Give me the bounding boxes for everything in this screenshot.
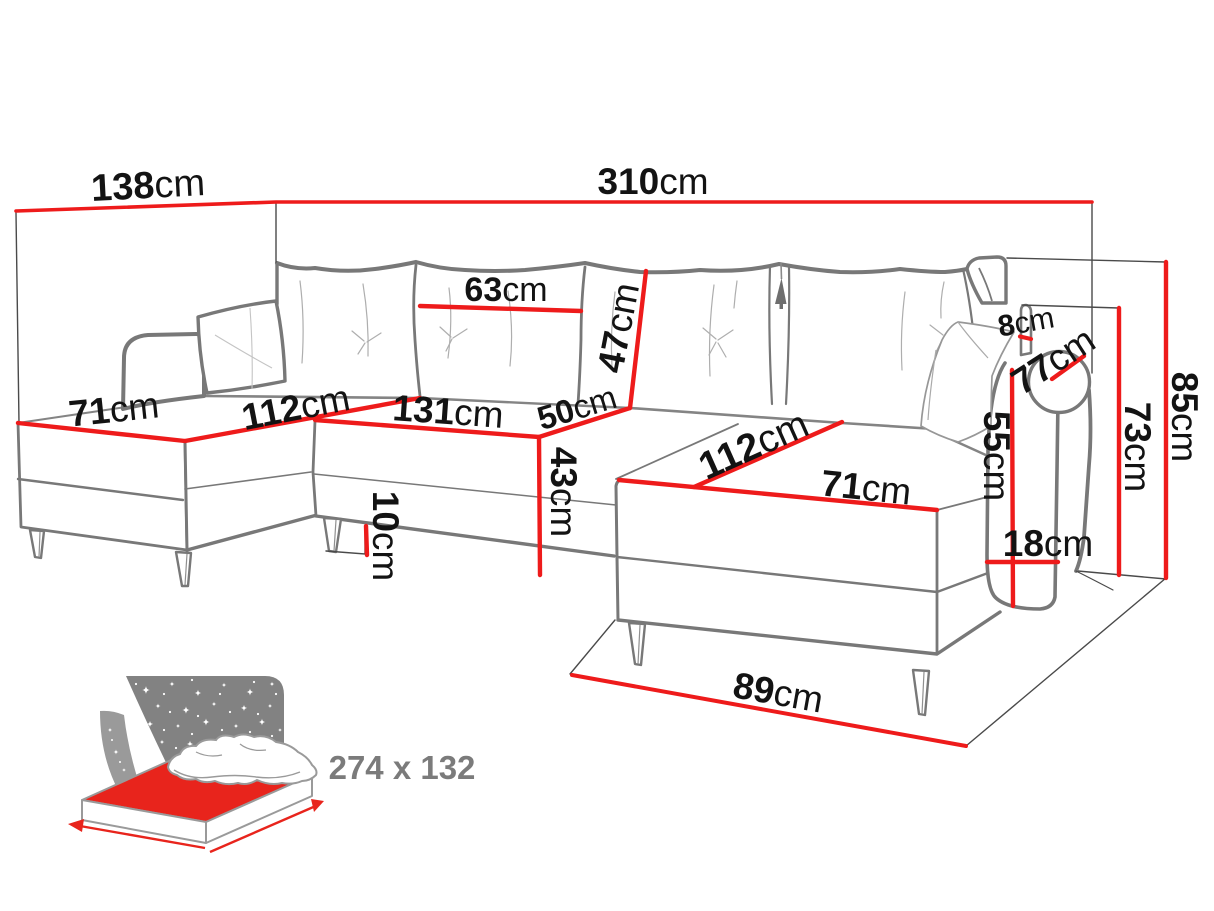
svg-text:18cm: 18cm <box>1003 523 1093 564</box>
svg-text:138cm: 138cm <box>90 162 206 210</box>
svg-text:73cm: 73cm <box>1117 402 1158 492</box>
svg-text:55cm: 55cm <box>976 411 1017 501</box>
svg-text:131cm: 131cm <box>391 387 505 436</box>
svg-text:85cm: 85cm <box>1164 372 1205 462</box>
svg-text:310cm: 310cm <box>597 161 708 202</box>
svg-text:274 x 132: 274 x 132 <box>329 749 476 786</box>
svg-text:43cm: 43cm <box>543 447 584 537</box>
svg-text:10cm: 10cm <box>365 491 406 581</box>
svg-text:63cm: 63cm <box>464 271 547 309</box>
